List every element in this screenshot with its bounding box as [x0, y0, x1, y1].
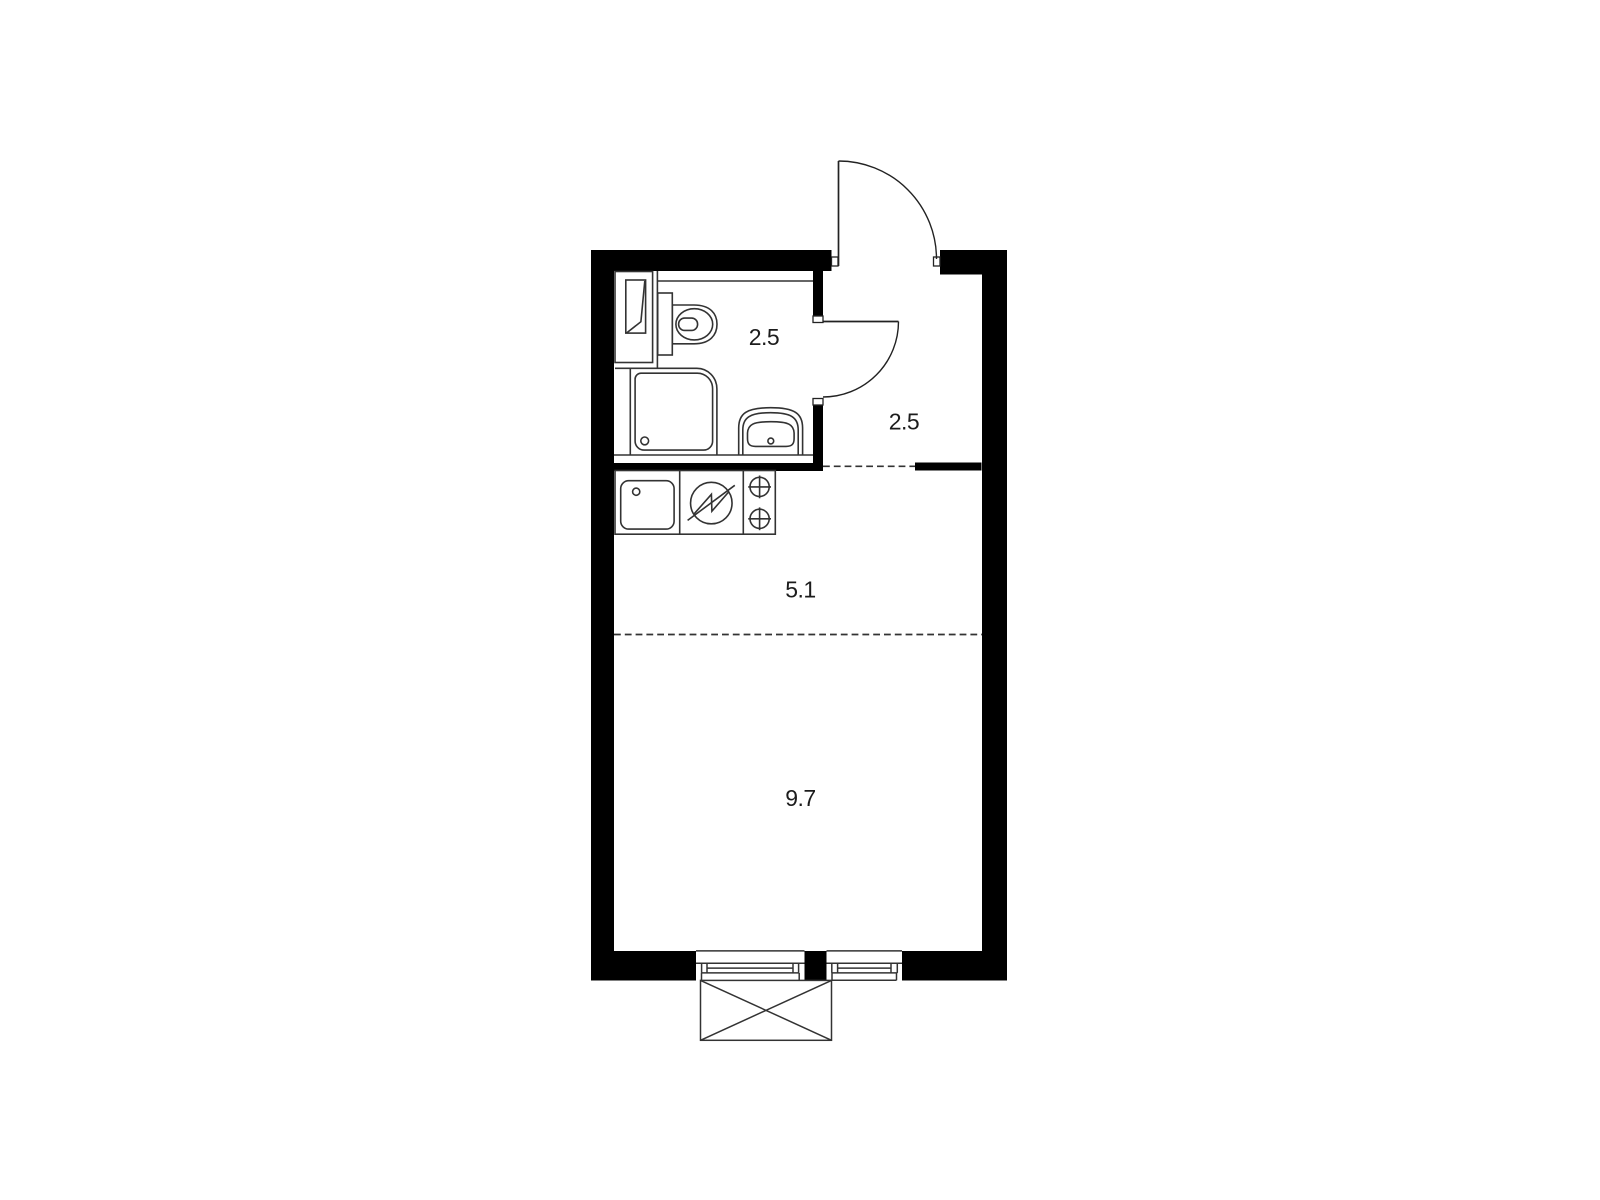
svg-text:9.7: 9.7	[785, 785, 815, 811]
svg-text:2.5: 2.5	[749, 324, 779, 350]
svg-text:2.5: 2.5	[889, 409, 919, 435]
svg-text:5.1: 5.1	[785, 577, 815, 603]
